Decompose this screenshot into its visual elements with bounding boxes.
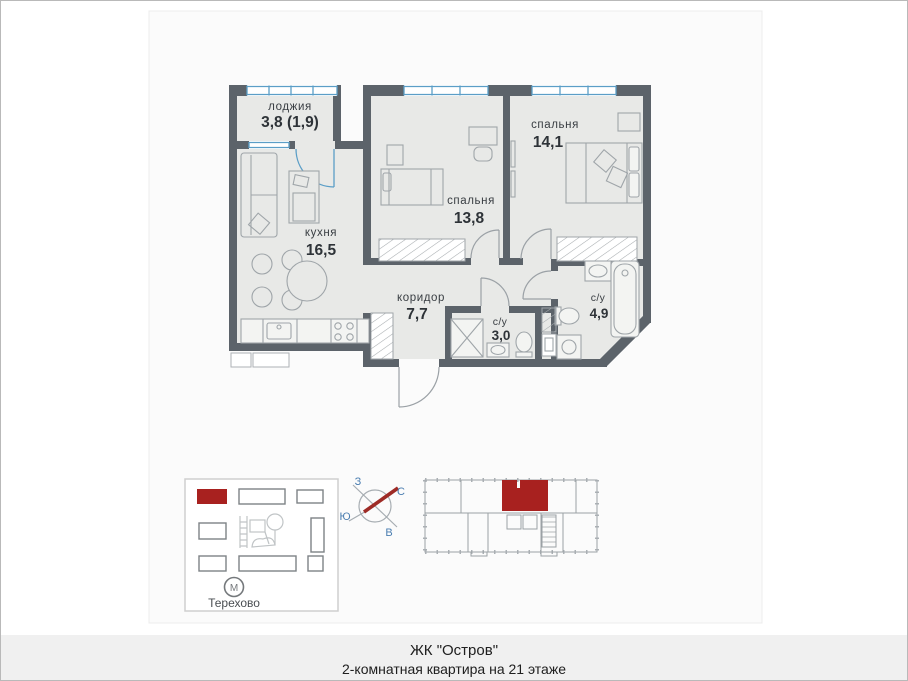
nightstand-icon — [618, 113, 640, 131]
bathtub-icon — [611, 261, 639, 337]
page: лоджия 3,8 (1,9) кухня 16,5 спальня 13,8… — [0, 0, 908, 681]
room-area-kitchen: 16,5 — [306, 242, 337, 259]
wardrobe-icon — [371, 313, 393, 359]
stairwell — [542, 515, 556, 547]
kitchen-counter-icon — [241, 319, 369, 343]
room-label-bathroom-3: с/у — [493, 316, 508, 328]
room-label-bedroom-14: спальня — [531, 119, 579, 131]
bedroom-14-window — [532, 85, 616, 96]
highlighted-building — [197, 489, 227, 504]
wardrobe-icon — [557, 237, 637, 261]
bedroom-13-window — [404, 85, 488, 96]
metro-symbol: М — [230, 583, 238, 594]
compass-west: З — [355, 476, 362, 488]
toilet-icon — [516, 332, 532, 357]
highlighted-apartment — [502, 480, 548, 511]
room-area-bedroom-13: 13,8 — [454, 210, 485, 227]
building-outline — [239, 556, 296, 571]
caption-bar: ЖК "Остров" 2-комнатная квартира на 21 э… — [1, 635, 907, 681]
floor-plan-scene: лоджия 3,8 (1,9) кухня 16,5 спальня 13,8… — [1, 1, 908, 681]
shower-icon — [451, 319, 483, 357]
room-area-bathroom-3: 3,0 — [492, 328, 511, 343]
room-area-bedroom-14: 14,1 — [533, 134, 564, 151]
compass-south: Ю — [339, 511, 350, 523]
building-outline — [199, 556, 226, 571]
apartment-description: 2-комнатная квартира на 21 этаже — [1, 659, 907, 677]
room-label-kitchen: кухня — [305, 227, 337, 239]
metro-station-label: Терехово — [208, 596, 260, 610]
building-outline — [308, 556, 323, 571]
toilet-icon — [555, 307, 579, 325]
wardrobe-icon — [379, 239, 465, 261]
building-outline — [297, 490, 323, 503]
room-label-bedroom-13: спальня — [447, 195, 495, 207]
room-label-bathroom-49: с/у — [591, 292, 606, 304]
compass-east: В — [385, 527, 392, 539]
room-area-corridor: 7,7 — [406, 306, 428, 323]
compass-north: С — [397, 486, 405, 498]
building-outline — [239, 489, 285, 504]
dresser-icon — [387, 145, 403, 165]
bed-double-icon — [566, 143, 642, 203]
room-label-corridor: коридор — [397, 292, 445, 304]
bed-single-icon — [381, 169, 443, 205]
utility-box — [253, 353, 289, 367]
tv-stand-icon — [289, 171, 319, 223]
loggia-window — [247, 85, 337, 96]
room-label-loggia: лоджия — [268, 101, 312, 113]
room-area-bathroom-49: 4,9 — [590, 306, 609, 321]
washing-machine-icon — [557, 335, 581, 359]
building-outline — [199, 523, 226, 539]
complex-name: ЖК "Остров" — [1, 635, 907, 659]
sofa-icon — [241, 153, 277, 237]
utility-box — [231, 353, 251, 367]
sink-icon — [585, 261, 611, 281]
room-area-loggia: 3,8 (1,9) — [261, 114, 319, 131]
building-outline — [311, 518, 324, 552]
duct-shaft — [542, 308, 556, 356]
site-map: М Терехово — [185, 479, 338, 611]
sink-icon — [487, 343, 509, 357]
